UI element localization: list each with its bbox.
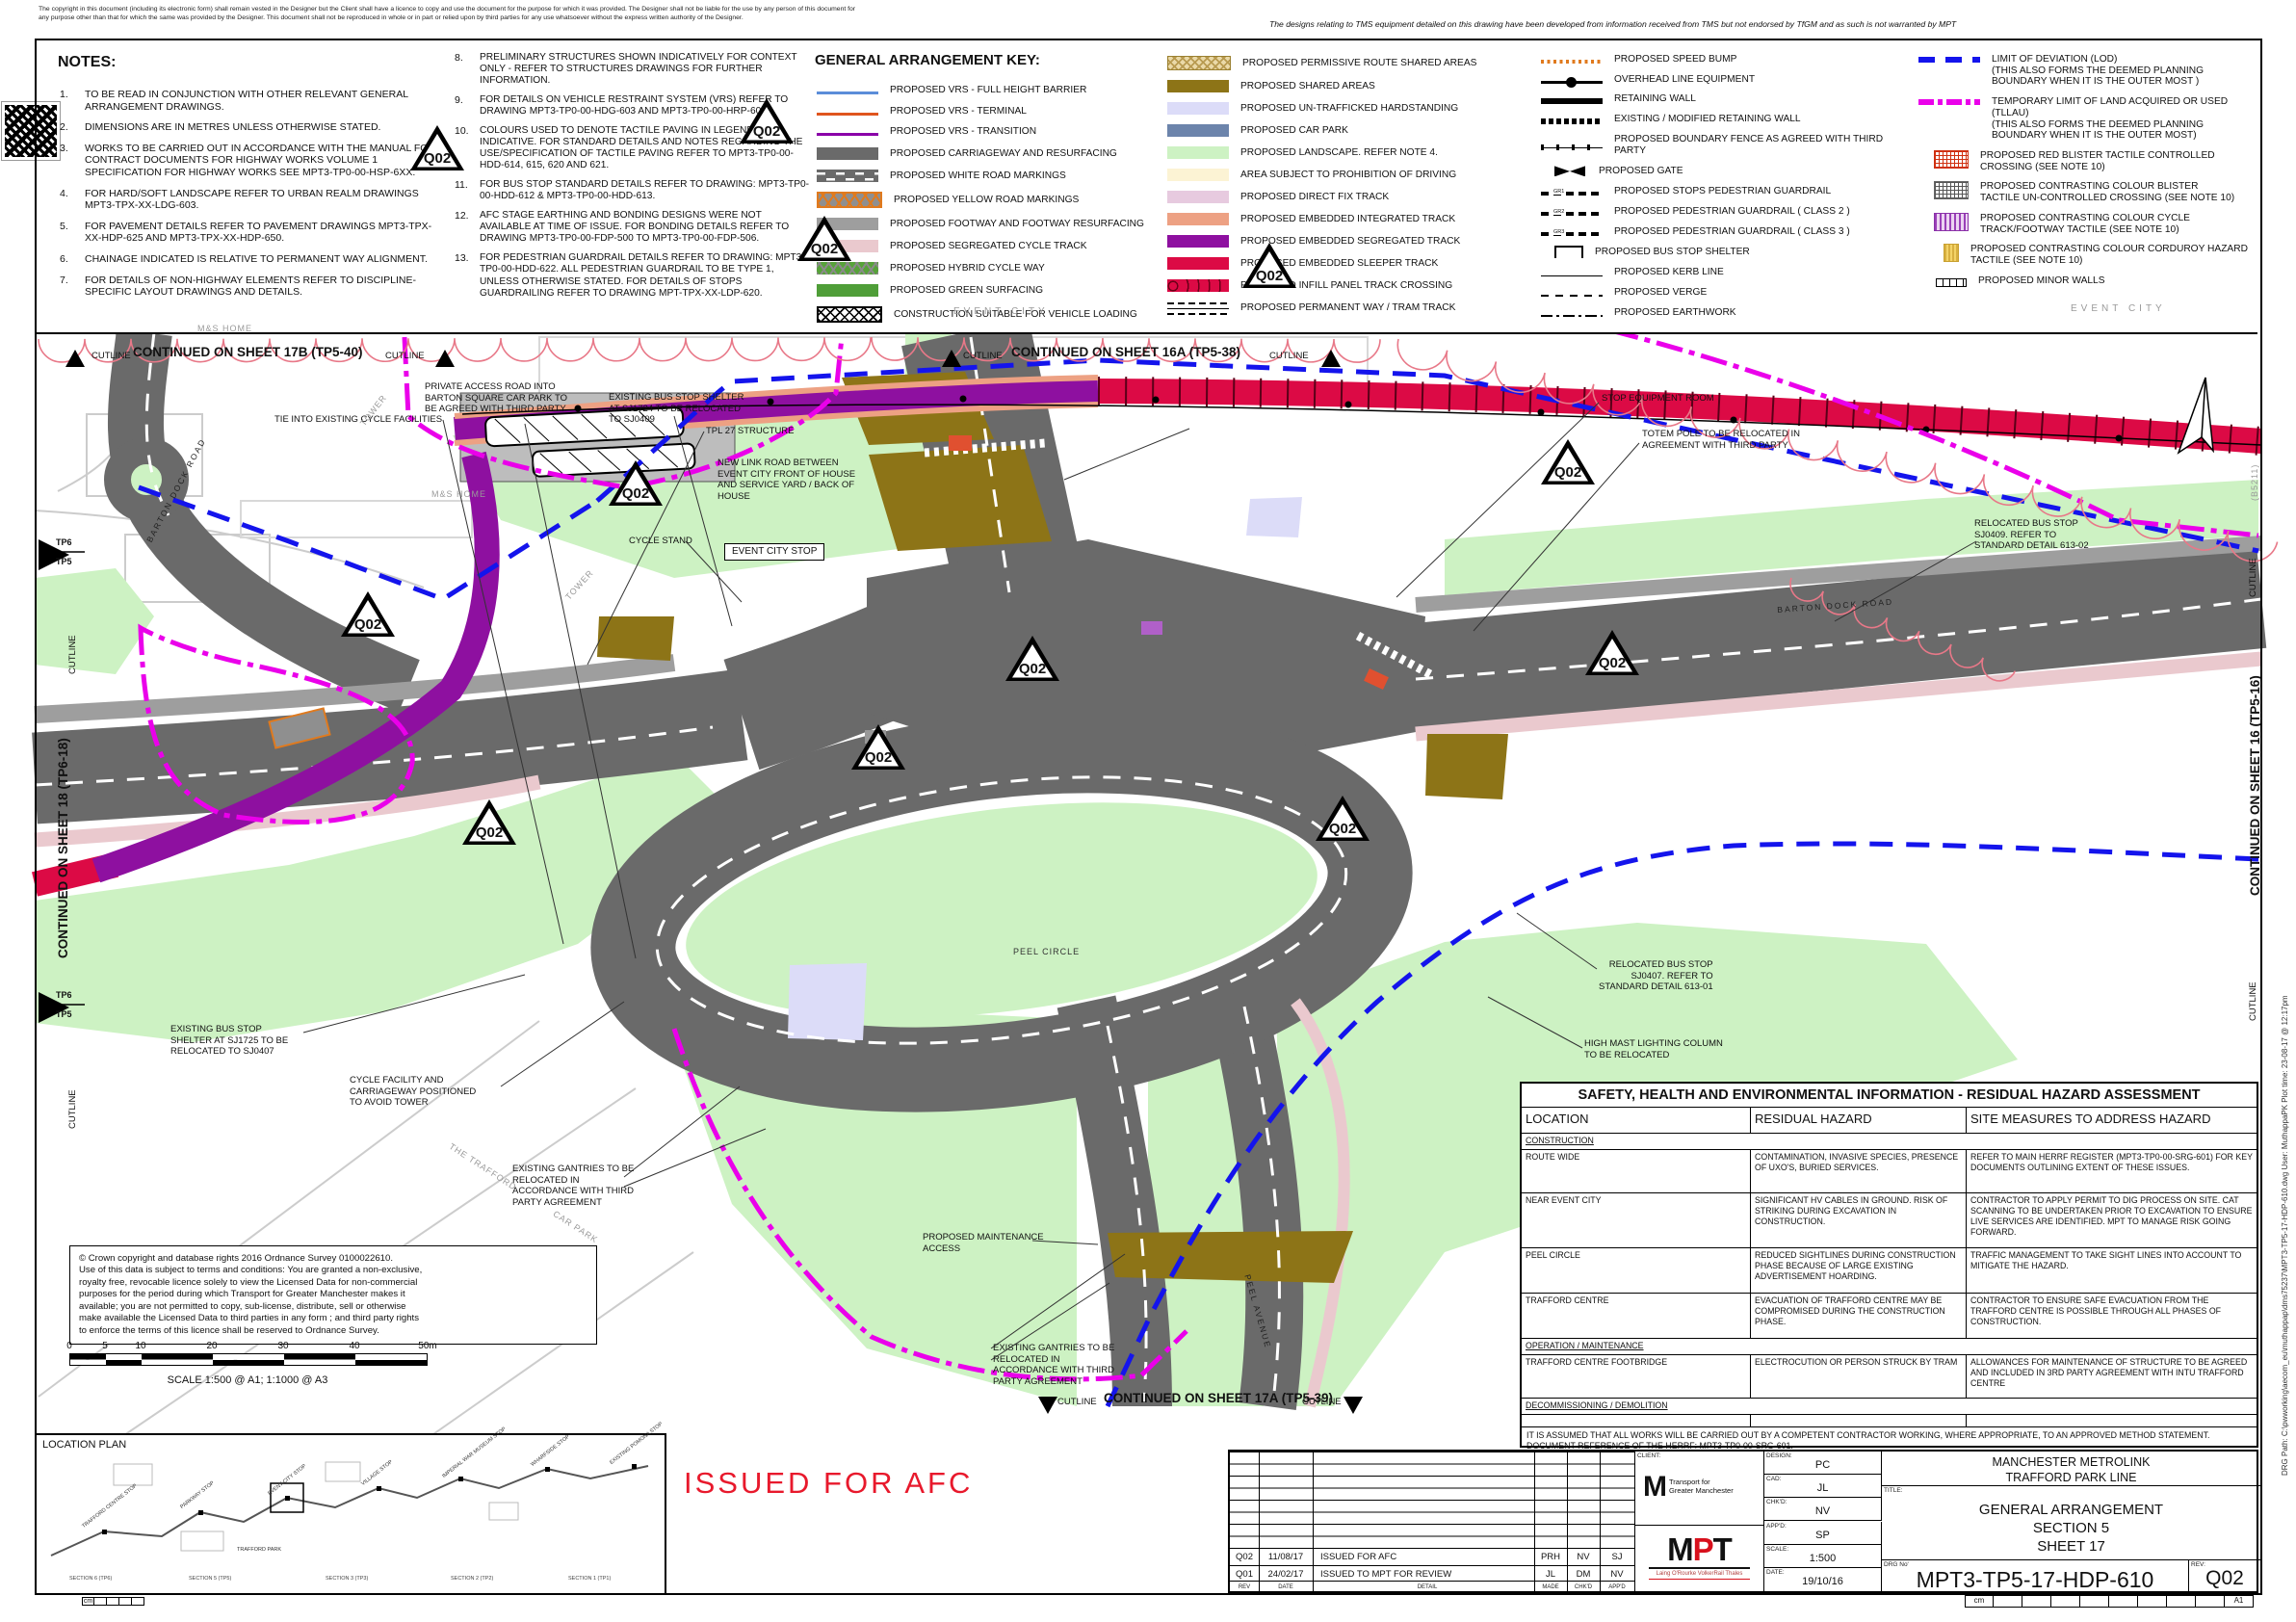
notes-column-2: 8.PRELIMINARY STRUCTURES SHOWN INDICATIV… [455,52,813,307]
legend-label: PROPOSED GREEN SURFACING [890,285,1043,297]
residual-hazard-table: SAFETY, HEALTH AND ENVIRONMENTAL INFORMA… [1520,1082,2258,1448]
note-item: 4.FOR HARD/SOFT LANDSCAPE REFER TO URBAN… [60,188,445,212]
legend-label: PROPOSED EMBEDDED INTEGRATED TRACK [1240,214,1455,225]
legend-label: PROPOSED PEDESTRIAN GUARDRAIL ( CLASS 2 … [1614,206,1850,218]
legend-swatch [817,92,878,94]
location-plan-route [37,1435,665,1593]
legend-label: OVERHEAD LINE EQUIPMENT [1614,74,1755,86]
legend-row: PROPOSED EMBEDDED SEGREGATED TRACK [1167,235,1537,248]
legend-label: PROPOSED SPEED BUMP [1614,54,1736,65]
cad-label: CAD: [1766,1476,1782,1482]
revision-triangle-q02: Q02 [1585,630,1639,675]
hazard-table-title: SAFETY, HEALTH AND ENVIRONMENTAL INFORMA… [1522,1084,2257,1108]
plan-annotation: EXISTING GANTRIES TO BE RELOCATED IN ACC… [993,1343,1114,1387]
scale-tick: 30 [277,1341,288,1351]
revision-cell: REV: Q02 [2188,1560,2260,1591]
legend-label: PROPOSED VERGE [1614,287,1707,299]
legend-swatch [817,147,878,160]
plan-annotation: M&S HOME [197,324,252,334]
plan-annotation: TP6 [56,537,72,548]
legend-swatch: GR1 [1541,192,1603,196]
issued-for-afc-stamp: ISSUED FOR AFC [684,1466,973,1501]
scale-tick: 40 [349,1341,359,1351]
legend-label: PROPOSED LANDSCAPE. REFER NOTE 4. [1240,147,1438,159]
scale-tick: 20 [206,1341,217,1351]
legend-swatch [1167,169,1229,181]
hazard-location [1522,1415,1751,1426]
legend-row: PROPOSED CONTRASTING COLOUR CORDUROY HAZ… [1918,244,2257,266]
cm-ruler-strip: cm A1 [1965,1595,2254,1608]
hazard-table-row: PEEL CIRCLEREDUCED SIGHTLINES DURING CON… [1522,1248,2257,1294]
note-text: AFC STAGE EARTHING AND BONDING DESIGNS W… [480,210,813,245]
hazard-location: ROUTE WIDE [1522,1150,1751,1192]
scale-label: SCALE: [1766,1546,1788,1553]
legend-row: PROPOSED BUS STOP SHELTER [1541,246,1913,258]
legend-label: PROPOSED UN-TRAFFICKED HARDSTANDING [1240,103,1458,115]
legend-row: PROPOSED SHARED AREAS [1167,80,1537,92]
scale-tick: 50m [418,1341,436,1351]
revision-triangle-q02: Q02 [797,216,851,261]
cm-box [2138,1595,2167,1608]
hazard-location: DECOMMISSIONING / DEMOLITION [1522,1399,1751,1414]
legend-label: RETAINING WALL [1614,93,1696,105]
revision-header-made: MADE [1534,1584,1567,1590]
hazard-col-hazard: RESIDUAL HAZARD [1751,1108,1967,1133]
note-text: PRELIMINARY STRUCTURES SHOWN INDICATIVEL… [480,52,813,87]
note-item: 5.FOR PAVEMENT DETAILS REFER TO PAVEMENT… [60,221,445,245]
revision-empty-rows [1230,1452,1634,1548]
legend-swatch-symbol: GR3 [1552,229,1565,235]
note-number: 3. [60,143,85,179]
note-item: 11.FOR BUS STOP STANDARD DETAILS REFER T… [455,179,813,202]
revision-triangle-label: Q02 [740,123,794,140]
legend-swatch: GR3 [1541,232,1603,236]
cad-value: JL [1764,1482,1881,1494]
legend-swatch [817,170,878,182]
scale-bar-graphic [69,1353,428,1366]
legend-column-3: PROPOSED SPEED BUMPOVERHEAD LINE EQUIPME… [1541,54,1913,327]
location-section-label: SECTION 3 (TP3) [326,1576,368,1582]
chkd-cell: CHK'D:NV [1764,1498,1882,1521]
revision-triangle-label: Q02 [341,616,395,633]
revision-date: 11/08/17 [1259,1552,1313,1562]
revision-triangle-q02: Q02 [851,724,905,770]
legend-row: GR3PROPOSED PEDESTRIAN GUARDRAIL ( CLASS… [1541,226,1913,238]
legend-row: GR2PROPOSED PEDESTRIAN GUARDRAIL ( CLASS… [1541,206,1913,218]
scale-tick: 10 [135,1341,145,1351]
mpt-letter: P [1693,1531,1713,1567]
legend-swatch [1934,181,1969,199]
legend-label: PROPOSED CONTRASTING COLOUR CORDUROY HAZ… [1970,244,2248,266]
revision-triangle-q02: Q02 [1005,636,1059,681]
legend-row: PROPOSED CAR PARK [1167,124,1537,137]
revision-chkd: DM [1567,1569,1600,1580]
revision-triangle-q02: Q02 [341,591,395,637]
plan-annotation: PEEL CIRCLE [1013,947,1080,957]
hazard-table-row: TRAFFORD CENTRE FOOTBRIDGEELECTROCUTION … [1522,1355,2257,1399]
hazard-table-row: ROUTE WIDECONTAMINATION, INVASIVE SPECIE… [1522,1150,2257,1193]
legend-swatch [1167,56,1231,70]
revision-value: Q02 [2189,1567,2260,1590]
legend-swatch [1541,295,1603,297]
legend-swatch [1541,315,1603,317]
copyright-disclaimer: The copyright in this document (includin… [39,6,905,23]
drawing-title-cell: TITLE: GENERAL ARRANGEMENT SECTION 5 SHE… [1882,1486,2260,1560]
hazard-residual [1751,1399,1967,1414]
plan-annotation: CUTLINE [1269,351,1309,362]
legend-swatch [1554,246,1583,258]
note-number: 1. [60,89,85,113]
note-number: 12. [455,210,480,245]
location-section-label: SECTION 2 (TP2) [451,1576,493,1582]
hazard-measures: TRAFFIC MANAGEMENT TO TAKE SIGHT LINES I… [1967,1248,2257,1293]
legend-label: TEMPORARY LIMIT OF LAND ACQUIRED OR USED… [1992,96,2228,142]
legend-label: PROPOSED PEDESTRIAN GUARDRAIL ( CLASS 3 … [1614,226,1850,238]
note-item: 7.FOR DETAILS OF NON-HIGHWAY ELEMENTS RE… [60,275,445,299]
scale-bar-ticks: 051020304050m [69,1341,435,1353]
plan-annotation: EVENT CITY STOP [724,543,824,561]
hazard-table-row [1522,1415,2257,1427]
legend-swatch-symbol: GR2 [1552,209,1565,215]
legend-row: PROPOSED PERMANENT WAY / TRAM TRACK [1167,301,1537,315]
revision-appd: NV [1600,1569,1634,1580]
notes-heading: NOTES: [58,54,116,71]
legend-row: PROPOSED VRS - FULL HEIGHT BARRIER [817,85,1163,96]
date-cell: DATE:19/10/16 [1764,1568,1882,1591]
appd-label: APP'D: [1766,1523,1787,1530]
location-plan: LOCATION PLAN TRAFFORD CENTRE STOPPARKWA… [37,1433,666,1593]
note-number: 13. [455,252,480,299]
notes-column-1: 1.TO BE READ IN CONJUNCTION WITH OTHER R… [60,89,445,307]
plan-annotation: TP6 [56,990,72,1001]
legend-row: PROPOSED EMBEDDED INTEGRATED TRACK [1167,213,1537,225]
legend-swatch [817,262,878,275]
plan-annotation: CUTLINE [67,1089,79,1129]
revision-header-rev: REV [1230,1584,1259,1590]
hazard-location: TRAFFORD CENTRE [1522,1294,1751,1338]
note-number: 9. [455,94,480,118]
revision-triangle-label: Q02 [1541,464,1595,481]
plan-annotation: PROPOSED MAINTENANCE ACCESS [923,1232,1044,1254]
legend-row: PROPOSED GATE [1541,165,1913,177]
tfgm-logo: M Transport for Greater Manchester [1643,1473,1734,1502]
legend-label: PROPOSED VRS - TERMINAL [890,106,1027,118]
cm-box [132,1597,144,1606]
legend-row: PROPOSED CONTRASTING COLOUR CYCLE TRACK/… [1918,213,2257,235]
revision-triangle-q02: Q02 [1541,439,1595,484]
mpt-logo-partners: Laing O'Rourke VolkerRail Thales [1649,1567,1750,1580]
mpt-logo: MPT Laing O'Rourke VolkerRail Thales [1635,1533,1763,1580]
note-text: FOR BUS STOP STANDARD DETAILS REFER TO D… [480,179,813,202]
hazard-table-rows: CONSTRUCTIONROUTE WIDECONTAMINATION, INV… [1522,1134,2257,1427]
plan-annotation: CONTINUED ON SHEET 17B (TP5-40) [133,345,363,360]
revision-header-date: DATE [1259,1584,1313,1590]
revision-triangle-q02: Q02 [462,799,516,845]
legend-label: PROPOSED DIRECT FIX TRACK [1240,192,1389,203]
legend-label: PROPOSED VRS - FULL HEIGHT BARRIER [890,85,1086,96]
legend-label: PROPOSED STOPS PEDESTRIAN GUARDRAIL [1614,186,1831,197]
legend-swatch [1541,275,1603,277]
plan-annotation: CUTLINE [1302,1397,1342,1408]
legend-row: PROPOSED VRS - TRANSITION [817,126,1163,138]
legend-row: PROPOSED EMBEDDED SLEEPER TRACK [1167,257,1537,270]
location-section-label: SECTION 5 (TP5) [189,1576,231,1582]
legend-swatch [1918,99,1980,105]
legend-column-4: LIMIT OF DEVIATION (LOD) (THIS ALSO FORM… [1918,54,2257,296]
hazard-location: CONSTRUCTION [1522,1134,1751,1149]
appd-cell: APP'D:SP [1764,1522,1882,1545]
note-text: CHAINAGE INDICATED IS RELATIVE TO PERMAN… [85,253,428,266]
hazard-residual [1751,1339,1967,1354]
note-number: 5. [60,221,85,245]
legend-column-1: PROPOSED VRS - FULL HEIGHT BARRIERPROPOS… [817,85,1163,332]
legend-label: PROPOSED CARRIAGEWAY AND RESURFACING [890,148,1117,160]
legend-row: AREA SUBJECT TO PROHIBITION OF DRIVING [1167,169,1537,181]
title-block: Q0211/08/17ISSUED FOR AFCPRHNVSJQ0124/02… [1228,1450,2258,1593]
legend-label: PROPOSED PERMANENT WAY / TRAM TRACK [1240,302,1455,314]
location-stop-label: TRAFFORD PARK [237,1547,281,1553]
cm-box [2022,1595,2051,1608]
revision-triangle-q02: Q02 [410,125,464,170]
legend-swatch [1541,60,1603,64]
plan-annotation: CUTLINE [91,351,131,362]
legend-swatch [1541,98,1603,104]
note-number: 4. [60,188,85,212]
legend-row: RETAINING WALL [1541,93,1913,105]
hazard-location: TRAFFORD CENTRE FOOTBRIDGE [1522,1355,1751,1398]
legend-swatch [1167,213,1229,225]
cm-box [94,1597,107,1606]
revision-header-row: REV DATE DETAIL MADE CHK'D APP'D [1230,1581,1634,1592]
legend-swatch-symbol: GR1 [1552,189,1565,195]
legend-label: PROPOSED MINOR WALLS [1978,275,2105,287]
plan-annotation: CONTINUED ON SHEET 16A (TP5-38) [1011,345,1240,360]
legend-label: PROPOSED PERMISSIVE ROUTE SHARED AREAS [1242,58,1476,69]
design-cell: DESIGN:PC [1764,1452,1882,1475]
qr-code [2,102,60,160]
note-number: 6. [60,253,85,266]
note-item: 8.PRELIMINARY STRUCTURES SHOWN INDICATIV… [455,52,813,87]
cad-cell: CAD:JL [1764,1475,1882,1498]
revision-rows: Q0211/08/17ISSUED FOR AFCPRHNVSJQ0124/02… [1230,1548,1634,1583]
revision-header-detail: DETAIL [1313,1584,1534,1590]
legend-label: LIMIT OF DEVIATION (LOD) (THIS ALSO FORM… [1992,54,2204,88]
design-value: PC [1764,1459,1881,1471]
legend-swatch [1167,279,1229,292]
revision-triangle-q02: Q02 [740,98,794,144]
legend-row: PROPOSED SEGREGATED CYCLE TRACK [817,240,1163,252]
hazard-measures: CONTRACTOR TO ENSURE SAFE EVACUATION FRO… [1967,1294,2257,1338]
legend-label: PROPOSED BOUNDARY FENCE AS AGREED WITH T… [1614,134,1913,156]
plan-annotation: NEW LINK ROAD BETWEEN EVENT CITY FRONT O… [717,458,855,502]
legend-swatch [1167,80,1229,92]
note-item: 13.FOR PEDESTRIAN GUARDRAIL DETAILS REFE… [455,252,813,299]
hazard-residual: CONTAMINATION, INVASIVE SPECIES, PRESENC… [1751,1150,1967,1192]
note-number: 8. [455,52,480,87]
legend-swatch [1167,146,1229,159]
legend-swatch [1936,278,1967,287]
location-section-label: SECTION 1 (TP1) [568,1576,611,1582]
revision-detail: ISSUED TO MPT FOR REVIEW [1313,1569,1534,1580]
hazard-table-row: OPERATION / MAINTENANCE [1522,1339,2257,1355]
revision-triangle-label: Q02 [797,241,851,257]
revision-chkd: NV [1567,1552,1600,1562]
legend-swatch [1934,213,1969,231]
plan-annotation: PRIVATE ACCESS ROAD INTO BARTON SQUARE C… [425,381,567,415]
legend-label: PROPOSED BUS STOP SHELTER [1595,247,1750,258]
revision-triangle-label: Q02 [1316,821,1370,837]
legend-label: PROPOSED SEGREGATED CYCLE TRACK [890,241,1087,252]
plan-annotation: CONTINUED ON SHEET 18 (TP6-18) [56,738,71,958]
hazard-measures: REFER TO MAIN HERRF REGISTER (MPT3-TP0-0… [1967,1150,2257,1192]
legend-row: PROPOSED CARRIAGEWAY AND RESURFACING [817,147,1163,160]
plan-annotation: CUTLINE [2248,981,2259,1021]
legend-row: PROPOSED BOUNDARY FENCE AS AGREED WITH T… [1541,134,1913,156]
hazard-col-measures: SITE MEASURES TO ADDRESS HAZARD [1967,1108,2257,1133]
hazard-measures: ALLOWANCES FOR MAINTENANCE OF STRUCTURE … [1967,1355,2257,1398]
a1-label: A1 [2225,1595,2254,1608]
legend-label: PROPOSED SHARED AREAS [1240,81,1375,92]
appd-value: SP [1764,1530,1881,1541]
legend-label: PROPOSED HYBRID CYCLE WAY [890,263,1045,275]
plan-annotation: CONTINUED ON SHEET 16 (TP5-16) [2248,675,2263,896]
title-label: TITLE: [1884,1487,1903,1494]
cm-box [2196,1595,2225,1608]
legend-swatch [817,284,878,297]
mpt-letter: M [1667,1531,1693,1567]
legend-swatch [1554,165,1587,177]
os-copyright-box: © Crown copyright and database rights 20… [69,1245,597,1345]
legend-row: PROPOSED KERB LINE [1541,267,1913,278]
scale-tick: 5 [102,1341,108,1351]
legend-swatch [1167,124,1229,137]
legend-row: PROPOSED WHITE ROAD MARKINGS [817,170,1163,182]
revision-made: PRH [1534,1552,1567,1562]
revision-header-chkd: CHK'D [1567,1584,1600,1590]
note-item: 3.WORKS TO BE CARRIED OUT IN ACCORDANCE … [60,143,445,179]
legend-label: PROPOSED EARTHWORK [1614,307,1736,319]
legend-swatch [817,113,878,116]
mpt-logo-word: MPT [1635,1533,1763,1565]
legend-row: EXISTING / MODIFIED RETAINING WALL [1541,114,1913,125]
legend-swatch: GR2 [1541,212,1603,216]
drawing-number-cell: DRG No' MPT3-TP5-17-HDP-610 [1882,1560,2188,1591]
legend-swatch [1167,102,1229,115]
legend-label: PROPOSED VRS - TRANSITION [890,126,1036,138]
legend-row: PROPOSED INFILL PANEL TRACK CROSSING [1167,279,1537,292]
legend-swatch [817,306,882,323]
date-value: 19/10/16 [1764,1576,1881,1587]
hazard-residual [1751,1134,1967,1149]
plan-annotation: CYCLE FACILITY AND CARRIAGEWAY POSITIONE… [350,1075,476,1109]
legend-swatch [1934,150,1969,169]
scale-value: 1:500 [1764,1553,1881,1564]
plot-path-text: DRG Path: C:\pwworking\aecom_eu\muthappa… [2281,995,2289,1476]
cm-box [2109,1595,2138,1608]
chkd-value: NV [1764,1505,1881,1517]
cm-box [2080,1595,2109,1608]
plan-annotation: CONTINUED ON SHEET 17A (TP5-39) [1104,1391,1333,1406]
hazard-location: PEEL CIRCLE [1522,1248,1751,1293]
legend-label: PROPOSED GATE [1599,166,1683,177]
note-item: 1.TO BE READ IN CONJUNCTION WITH OTHER R… [60,89,445,113]
note-item: 12.AFC STAGE EARTHING AND BONDING DESIGN… [455,210,813,245]
hazard-location: NEAR EVENT CITY [1522,1193,1751,1247]
plan-annotation: RELOCATED BUS STOP SJ0407. REFER TO STAN… [1599,959,1713,993]
note-text: FOR HARD/SOFT LANDSCAPE REFER TO URBAN R… [85,188,445,212]
scale-caption: SCALE 1:500 @ A1; 1:1000 @ A3 [69,1374,426,1386]
revision-triangle-q02: Q02 [609,460,663,506]
legend-row: PROPOSED MINOR WALLS [1918,275,2257,287]
plan-annotation: TP5 [56,1009,72,1020]
legend-heading: GENERAL ARRANGEMENT KEY: [815,52,1040,68]
scale-cell: SCALE:1:500 [1764,1545,1882,1568]
note-number: 2. [60,121,85,134]
legend-row: PROPOSED SPEED BUMP [1541,54,1913,65]
legend-label: PROPOSED YELLOW ROAD MARKINGS [894,195,1079,206]
plan-annotation: EVENT CITY [953,306,1049,318]
project-name: MANCHESTER METROLINK TRAFFORD PARK LINE [1882,1452,2260,1486]
plan-annotation: CUTLINE [2248,558,2259,597]
hazard-measures: CONTRACTOR TO APPLY PERMIT TO DIG PROCES… [1967,1193,2257,1247]
hazard-table-row: NEAR EVENT CITYSIGNIFICANT HV CABLES IN … [1522,1193,2257,1248]
plan-annotation: CUTLINE [385,351,425,362]
plan-annotation: RELOCATED BUS STOP SJ0409. REFER TO STAN… [1974,518,2089,552]
drawing-title: GENERAL ARRANGEMENT SECTION 5 SHEET 17 [1882,1502,2260,1556]
hazard-residual: SIGNIFICANT HV CABLES IN GROUND. RISK OF… [1751,1193,1967,1247]
legend-swatch [1167,235,1229,248]
plan-annotation: STOP EQUIPMENT ROOM [1602,393,1714,405]
cm-mini-ruler: cm [82,1597,144,1606]
revision-triangle-label: Q02 [609,485,663,502]
cm-box [2051,1595,2080,1608]
legend-label: PROPOSED WHITE ROAD MARKINGS [890,170,1066,182]
revision-triangle-label: Q02 [1585,655,1639,671]
legend-row: PROPOSED YELLOW ROAD MARKINGS [817,192,1163,208]
legend-label: PROPOSED CONTRASTING COLOUR BLISTER TACT… [1980,181,2234,203]
mpt-letter: T [1713,1531,1732,1567]
plan-annotation: CUTLINE [963,351,1003,362]
tms-disclaimer: The designs relating to TMS equipment de… [1269,19,2252,29]
plan-annotation: M&S HOME [431,489,486,500]
note-item: 6.CHAINAGE INDICATED IS RELATIVE TO PERM… [60,253,445,266]
legend-label: PROPOSED CONTRASTING COLOUR CYCLE TRACK/… [1980,213,2190,235]
plan-annotation: CUTLINE [67,635,79,674]
client-label: CLIENT: [1637,1452,1660,1459]
legend-row: PROPOSED UN-TRAFFICKED HARDSTANDING [1167,102,1537,115]
hazard-col-location: LOCATION [1522,1108,1751,1133]
revision-rev: Q01 [1230,1569,1259,1580]
hazard-measures [1967,1134,2257,1149]
hazard-residual: EVACUATION OF TRAFFORD CENTRE MAY BE COM… [1751,1294,1967,1338]
legend-swatch [1541,118,1603,124]
revision-date: 24/02/17 [1259,1569,1313,1580]
legend-label: PROPOSED CAR PARK [1240,125,1348,137]
plan-annotation: HIGH MAST LIGHTING COLUMN TO BE RELOCATE… [1584,1038,1723,1060]
revision-triangle-label: Q02 [410,150,464,167]
revision-rev: Q02 [1230,1552,1259,1562]
plan-annotation: EXISTING GANTRIES TO BE RELOCATED IN ACC… [512,1164,634,1208]
note-text: FOR PAVEMENT DETAILS REFER TO PAVEMENT D… [85,221,445,245]
drawing-number: MPT3-TP5-17-HDP-610 [1882,1567,2188,1593]
legend-label: PROPOSED KERB LINE [1614,267,1724,278]
legend-swatch [1167,257,1229,270]
contractor-cell: MPT Laing O'Rourke VolkerRail Thales [1634,1526,1764,1591]
note-text: DIMENSIONS ARE IN METRES UNLESS OTHERWIS… [85,121,380,134]
legend-swatch [1541,81,1603,84]
legend-row: OVERHEAD LINE EQUIPMENT [1541,74,1913,86]
legend-row: LIMIT OF DEVIATION (LOD) (THIS ALSO FORM… [1918,54,2257,88]
